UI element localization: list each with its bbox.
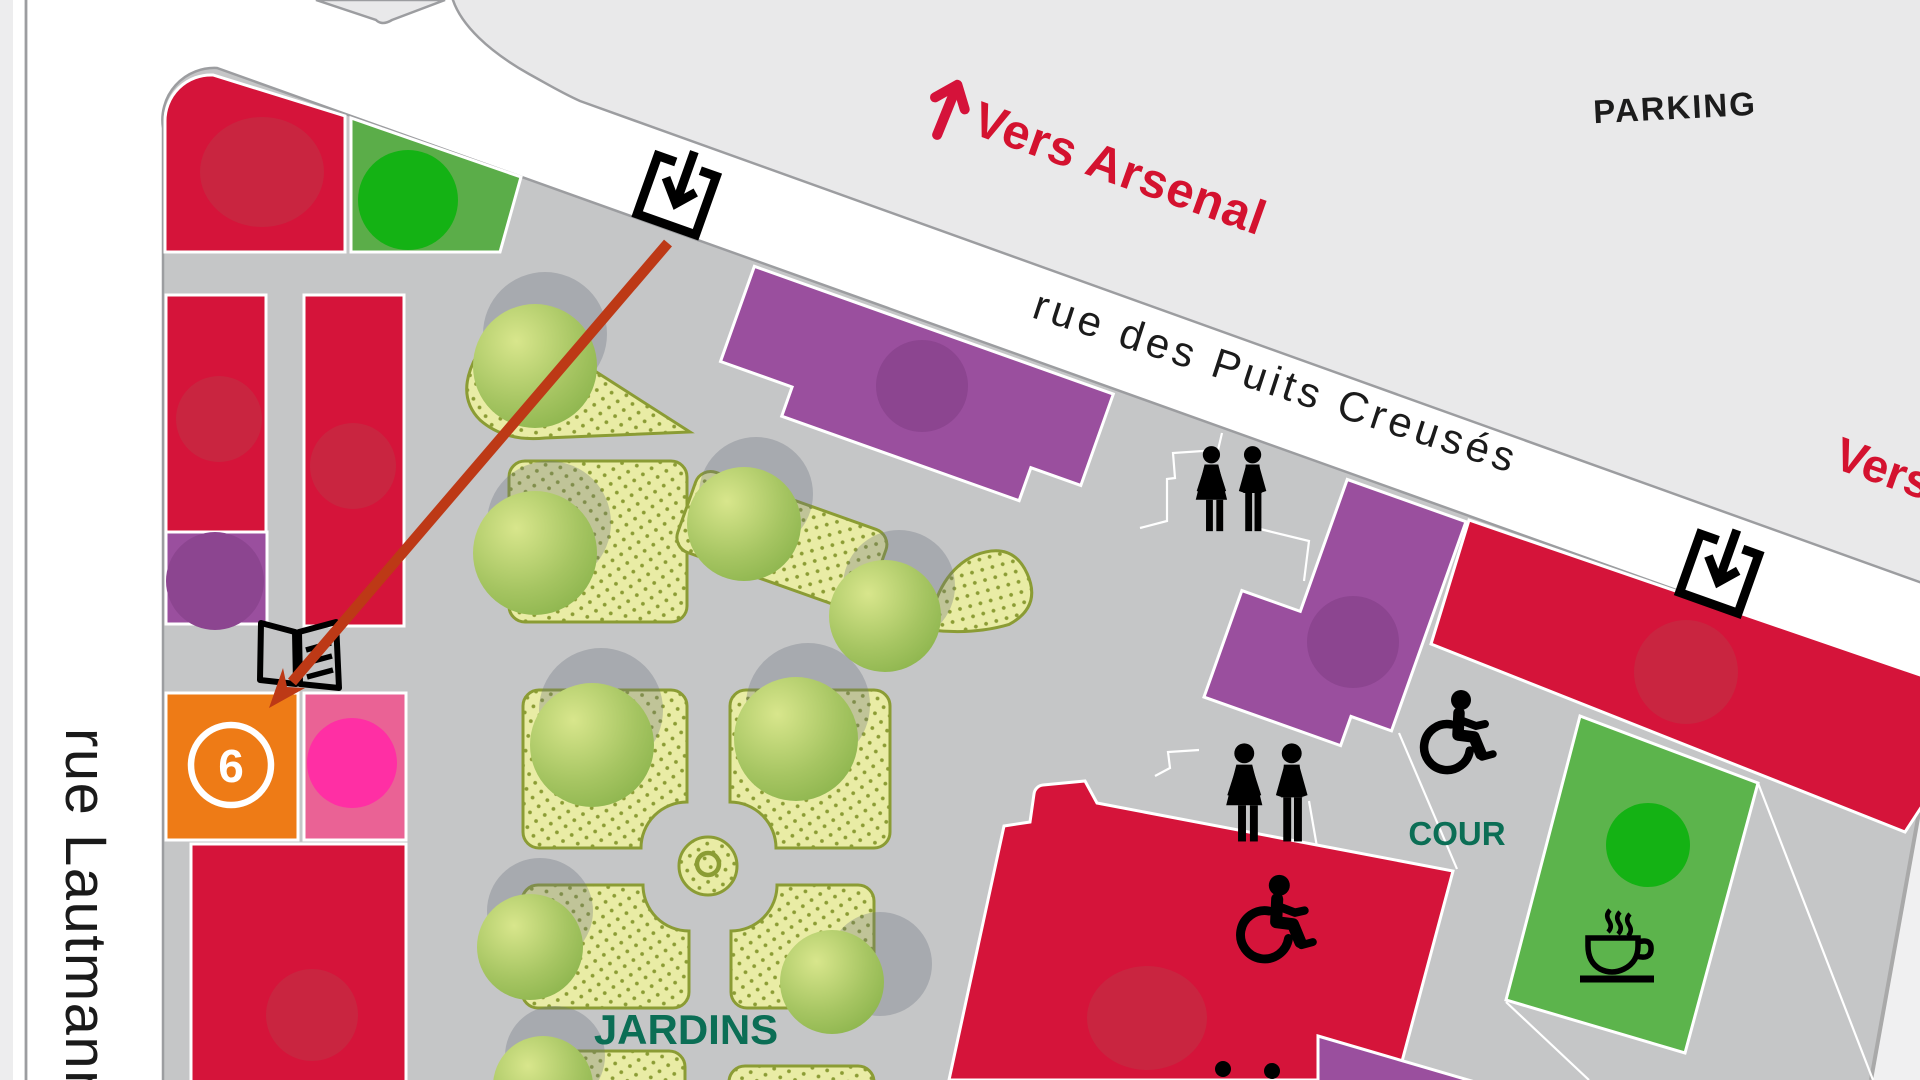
svg-text:rue Lautmann: rue Lautmann: [53, 728, 118, 1080]
svg-text:6: 6: [218, 740, 244, 792]
svg-text:JARDINS: JARDINS: [594, 1006, 778, 1053]
svg-text:COUR: COUR: [1408, 815, 1505, 852]
